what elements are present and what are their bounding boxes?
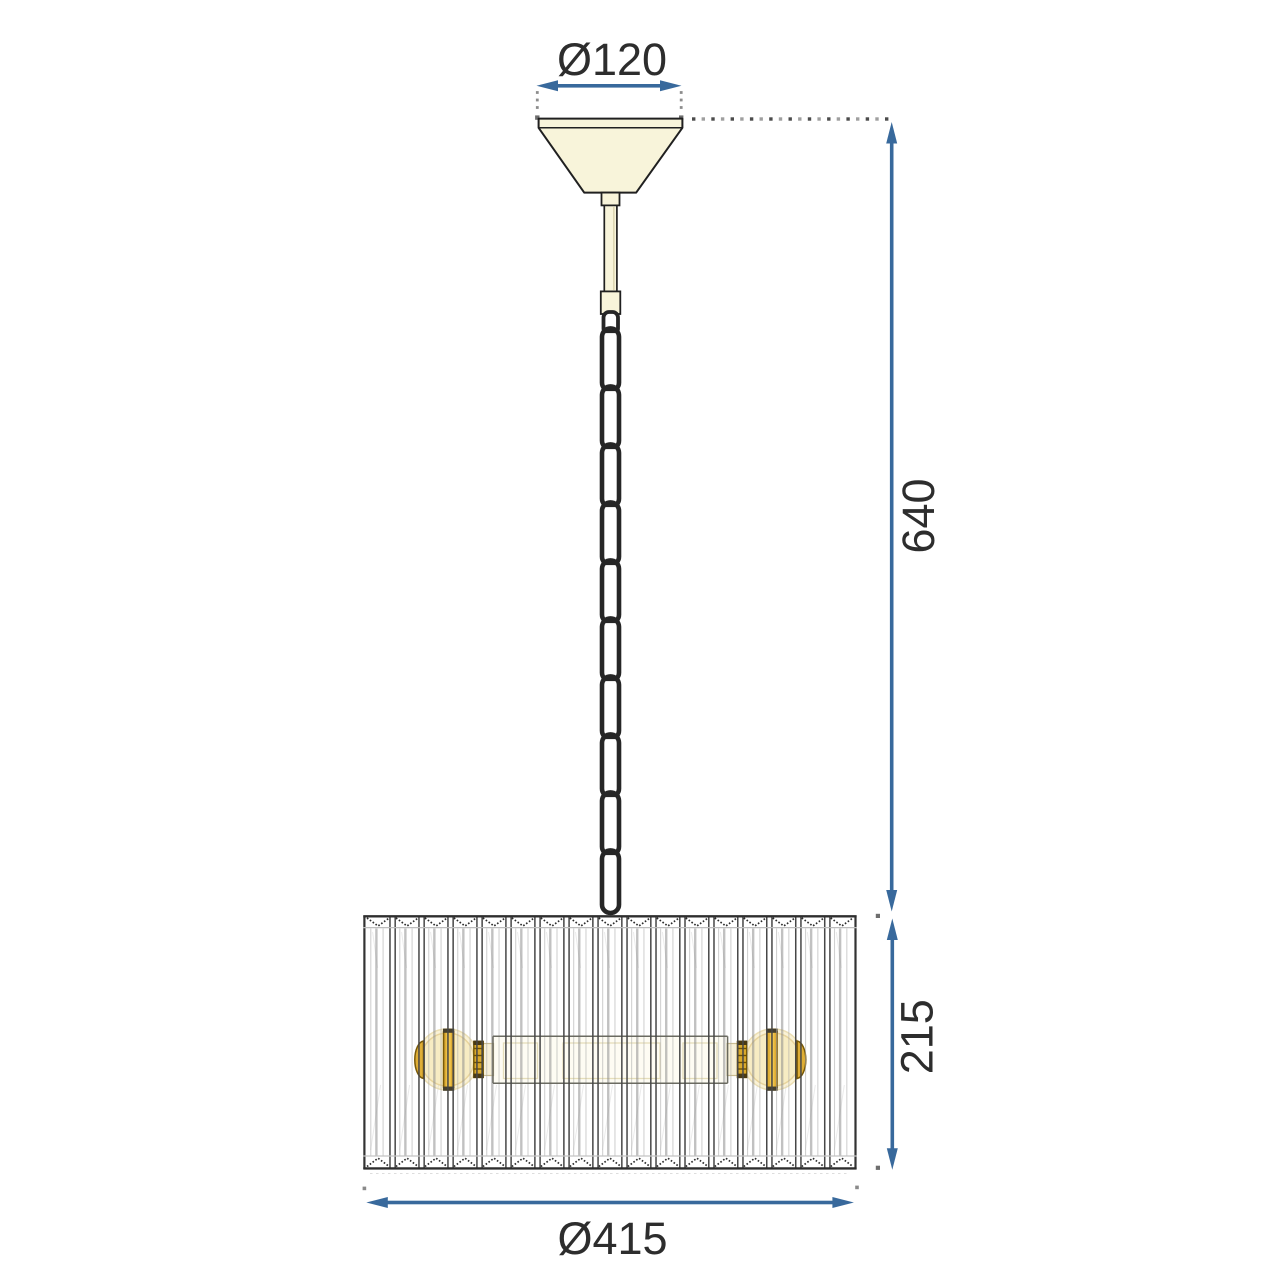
svg-text:Ø415: Ø415 (557, 1213, 667, 1264)
svg-text:215: 215 (892, 999, 943, 1074)
svg-text:640: 640 (893, 478, 944, 553)
svg-text:Ø120: Ø120 (557, 34, 667, 85)
